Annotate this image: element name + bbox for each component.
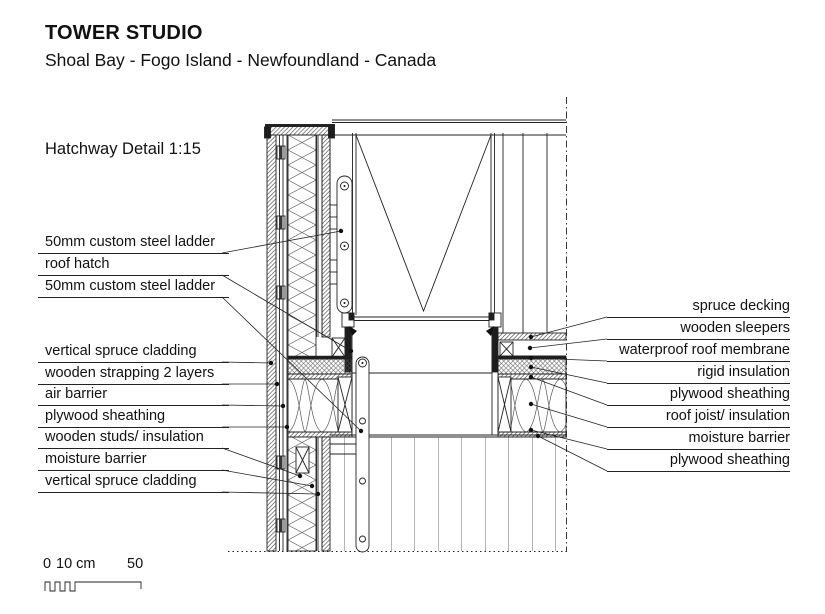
label-roof-joist-insulation: roof joist/ insulation (607, 407, 790, 428)
label-plywood-sheathing-wall: plywood sheathing (38, 407, 229, 428)
drawing-sheet: TOWER STUDIO Shoal Bay - Fogo Island - N… (0, 0, 825, 614)
label-plywood-sheathing-roof-upper: plywood sheathing (607, 385, 790, 406)
open-lid-swing-lines (356, 135, 491, 311)
label-moisture-barrier-wall: moisture barrier (38, 450, 229, 471)
wall-assembly (267, 135, 330, 551)
project-title: TOWER STUDIO (45, 22, 203, 45)
label-steel-ladder-top: 50mm custom steel ladder (38, 233, 229, 254)
label-wooden-sleepers: wooden sleepers (607, 319, 790, 340)
project-location: Shoal Bay - Fogo Island - Newfoundland -… (45, 50, 436, 71)
label-wooden-studs-insulation: wooden studs/ insulation (38, 428, 229, 449)
scale-bar (45, 582, 141, 591)
cladding-boards-upper (503, 133, 547, 333)
label-spruce-cladding-upper: vertical spruce cladding (38, 342, 229, 363)
label-wooden-strapping: wooden strapping 2 layers (38, 364, 229, 385)
label-steel-ladder-bottom: 50mm custom steel ladder (38, 277, 229, 298)
roof-deck-edge (332, 120, 566, 135)
scale-fifty: 50 (127, 556, 143, 572)
label-air-barrier: air barrier (38, 385, 229, 406)
label-spruce-decking: spruce decking (607, 297, 790, 318)
detail-title: Hatchway Detail 1:15 (45, 140, 201, 159)
label-moisture-barrier-roof: moisture barrier (607, 429, 790, 450)
scale-ten: 10 cm (56, 556, 96, 572)
label-spruce-cladding-lower: vertical spruce cladding (38, 472, 229, 493)
scale-zero: 0 (43, 556, 51, 572)
steel-ladder-upper (330, 176, 352, 313)
label-roof-hatch: roof hatch (38, 255, 229, 276)
label-plywood-sheathing-roof-lower: plywood sheathing (607, 451, 790, 472)
label-waterproof-roof-membrane: waterproof roof membrane (607, 341, 790, 362)
label-rigid-insulation: rigid insulation (607, 363, 790, 384)
hatch-curb-right (492, 327, 498, 372)
